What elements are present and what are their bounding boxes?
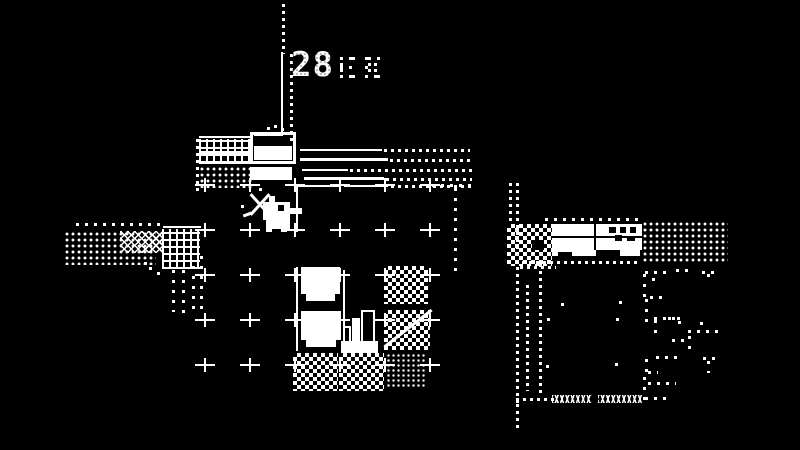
sword-spark-dot (241, 205, 244, 208)
yard-bottom-dots (516, 404, 519, 430)
stray-dot (546, 365, 549, 368)
fence-rail (304, 177, 384, 180)
rock-outline (707, 361, 710, 373)
fence-rail-dotted (350, 169, 472, 172)
stray-dot (615, 363, 618, 366)
rock-outline (645, 271, 671, 274)
path-dots-top (76, 223, 164, 226)
path-edge (163, 226, 201, 228)
house-window (620, 227, 626, 233)
rock-outline (672, 339, 690, 342)
path-waffle (162, 229, 200, 269)
stairs-bar-mid (352, 318, 360, 342)
tile-edge (296, 267, 298, 351)
yard-bottom-dots (516, 398, 554, 401)
fence-rail (300, 158, 388, 161)
rock-outline (656, 356, 678, 359)
table-leg-notch (335, 294, 340, 301)
floor-right-dotted-edge (454, 188, 457, 274)
path-trail-dots (172, 270, 175, 312)
house-roof-divider (594, 224, 596, 250)
rock-outline (703, 357, 717, 360)
fence-rail-dotted (390, 159, 472, 162)
house-ground-dots (520, 266, 556, 269)
rock-outline (645, 359, 648, 377)
house-window (630, 227, 636, 233)
house-window (609, 227, 616, 233)
chimney-dot (281, 128, 284, 131)
gravel-field (642, 221, 728, 263)
rock-outline (648, 382, 676, 385)
rock-outline (707, 274, 710, 284)
cliff-dither (507, 224, 552, 266)
rock-outline (650, 296, 662, 299)
cliff-dotted-edge (509, 183, 512, 225)
sword-spark-dot (259, 188, 262, 191)
desk-roof-edge (199, 136, 253, 138)
rock-outline (652, 278, 655, 288)
house-window (615, 235, 622, 241)
bed-sheet (254, 146, 292, 160)
hud-timer-decor-glyphs (340, 57, 386, 81)
yard-dotted-line (539, 264, 542, 394)
hud-timer-text: 28 (291, 48, 334, 82)
rock-outline (700, 322, 703, 330)
rock-outline (645, 397, 671, 400)
fence-rail (300, 149, 382, 151)
divider-line (281, 52, 283, 136)
chimney-dot (267, 127, 270, 130)
house-step-notch (558, 252, 572, 256)
path-trail-dots (200, 256, 203, 312)
cliff-notch (532, 240, 544, 250)
striped-tile (386, 353, 426, 389)
fence-rail-dotted (384, 149, 470, 152)
checker-tile (339, 353, 384, 391)
stray-dot (561, 303, 564, 306)
rock-outline (648, 371, 658, 374)
checker-tile (384, 266, 428, 304)
table-block (301, 311, 341, 347)
rock-outline (678, 321, 681, 331)
player-duck-sprite[interactable] (257, 196, 305, 235)
stray-dot (547, 318, 550, 321)
house-step-notch (596, 250, 620, 256)
rock-outline (654, 320, 657, 334)
rock-outline (645, 299, 648, 329)
house-window (627, 236, 635, 241)
rock-outline (688, 330, 718, 333)
water-waves (598, 395, 642, 403)
cliff-dotted-edge-long (516, 183, 519, 403)
yard-dotted-line (526, 285, 529, 391)
stray-dot (616, 318, 619, 321)
table-leg-notch (301, 294, 306, 301)
water-waves (552, 395, 592, 403)
fence-rail (302, 169, 348, 171)
stairs-bar-tall (361, 310, 375, 343)
divider-dotted-top (282, 4, 285, 54)
stray-dot (157, 272, 160, 275)
house-ground-dots (508, 261, 640, 264)
desk-bottom-edge (199, 162, 252, 164)
stairs-bar-small (343, 326, 351, 343)
path-trail-dots (192, 266, 195, 312)
stray-dot (619, 301, 622, 304)
stray-dot (149, 267, 152, 270)
bench (250, 167, 292, 180)
stray-dot (144, 262, 147, 265)
roof-top-dots (545, 218, 639, 221)
sword-spark (243, 212, 252, 218)
table-leg-notch (301, 340, 306, 347)
path-crosshatch (120, 231, 162, 253)
rock-outline (668, 317, 682, 320)
path-trail-dots (182, 270, 185, 316)
game-viewport[interactable]: 28 (0, 0, 800, 450)
desk-band (199, 151, 252, 156)
rock-outline (643, 274, 646, 300)
chimney-dot (274, 125, 277, 128)
rock-outline (676, 269, 694, 272)
checker-tile (293, 353, 338, 391)
